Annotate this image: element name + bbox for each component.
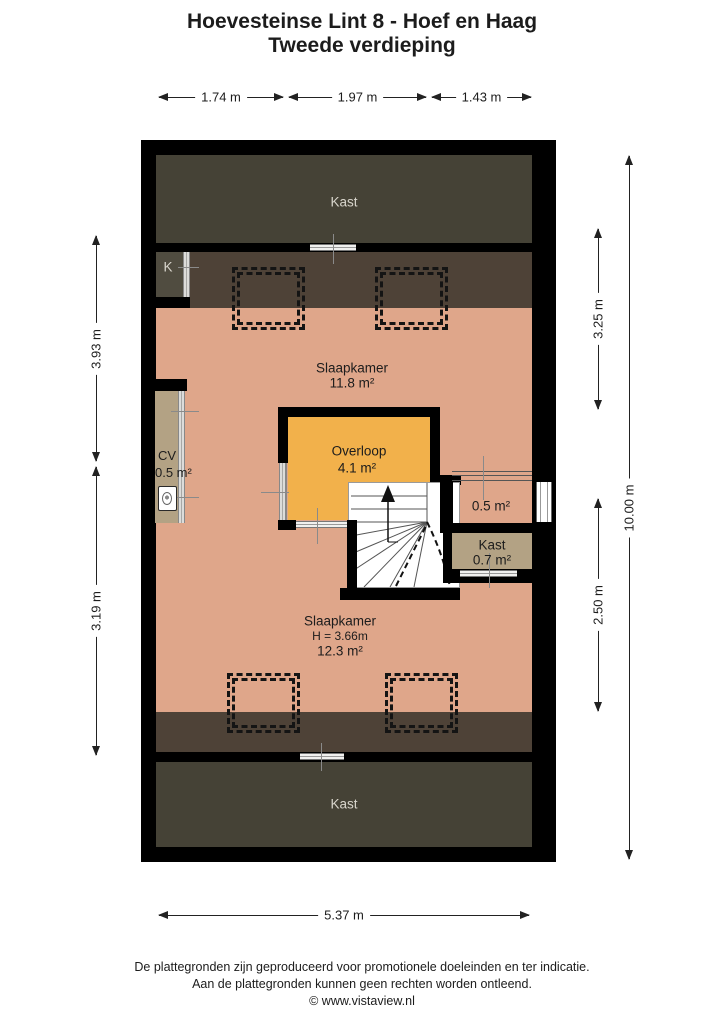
room-label-slaapkamer2: Slaapkamer bbox=[304, 614, 376, 629]
skylight-inner-frame bbox=[232, 678, 295, 728]
skylight-icon bbox=[227, 673, 300, 733]
door-tick bbox=[317, 508, 318, 544]
footer-credit: © www.vistaview.nl bbox=[0, 994, 724, 1008]
k-leader-line bbox=[178, 267, 199, 268]
arrowhead-right-icon bbox=[522, 93, 532, 101]
dimension-label: 3.93 m bbox=[88, 323, 105, 375]
dimension-bottom: 5.37 m bbox=[158, 908, 530, 922]
wall-overloop-top bbox=[278, 407, 440, 417]
sliding-door-overloop bbox=[296, 521, 348, 528]
arrowhead-down-icon bbox=[92, 452, 100, 462]
dimension-label: 1.74 m bbox=[195, 90, 247, 105]
floorplan: Kast K Slaapkamer 11.8 m² Overloop 4.1 m… bbox=[141, 140, 556, 862]
wall-stair-left bbox=[347, 520, 357, 588]
dimension-label: 2.50 m bbox=[590, 579, 607, 631]
skylight-inner-frame bbox=[237, 272, 300, 325]
wall-stair-bottom bbox=[340, 588, 460, 600]
dimension-right-1: 3.25 m bbox=[591, 228, 605, 410]
arrowhead-up-icon bbox=[92, 235, 100, 245]
dimension-right-total: 10.00 m bbox=[622, 155, 636, 860]
room-label-overloop: Overloop bbox=[332, 444, 387, 459]
skylight-icon bbox=[375, 267, 448, 330]
dimension-left-1: 3.93 m bbox=[89, 235, 103, 462]
wall-overloop-left bbox=[278, 417, 288, 463]
stair-railing bbox=[452, 471, 532, 481]
dimension-top-3: 1.43 m bbox=[431, 90, 532, 104]
skylight-icon bbox=[385, 673, 458, 733]
door-tick bbox=[171, 411, 199, 412]
door-tick bbox=[321, 743, 322, 771]
dimension-label: 10.00 m bbox=[621, 478, 638, 537]
room-area-kast-small: 0.7 m² bbox=[473, 553, 511, 568]
room-area-void: 0.5 m² bbox=[472, 499, 510, 514]
dimension-label: 3.25 m bbox=[590, 293, 607, 345]
room-area-cv: 0.5 m² bbox=[155, 465, 192, 480]
dimension-label: 5.37 m bbox=[318, 908, 370, 923]
arrowhead-down-icon bbox=[625, 850, 633, 860]
sloped-ceiling-strip-2 bbox=[156, 712, 532, 752]
arrowhead-up-icon bbox=[625, 155, 633, 165]
arrowhead-left-icon bbox=[158, 911, 168, 919]
wall-overloop-right bbox=[430, 417, 440, 475]
arrowhead-down-icon bbox=[594, 702, 602, 712]
arrowhead-up-icon bbox=[92, 466, 100, 476]
door-tick bbox=[261, 492, 289, 493]
dimension-right-2: 2.50 m bbox=[591, 498, 605, 712]
dimension-label: 1.97 m bbox=[332, 90, 384, 105]
skylight-inner-frame bbox=[380, 272, 443, 325]
arrowhead-right-icon bbox=[274, 93, 284, 101]
boiler-knob-icon bbox=[162, 492, 172, 505]
skylight-inner-frame bbox=[390, 678, 453, 728]
wall-void-closet bbox=[440, 523, 532, 533]
room-label-kast-top: Kast bbox=[330, 195, 357, 210]
wall-overloop-bottom bbox=[278, 520, 296, 530]
window-icon bbox=[536, 482, 552, 522]
dimension-top-2: 1.97 m bbox=[288, 90, 427, 104]
arrowhead-up-icon bbox=[594, 228, 602, 238]
room-label-kast-small: Kast bbox=[478, 538, 505, 553]
boiler-icon bbox=[158, 486, 177, 511]
sloped-ceiling-strip-1 bbox=[156, 252, 532, 308]
k-closet-door bbox=[183, 252, 190, 297]
dimension-top-1: 1.74 m bbox=[158, 90, 284, 104]
dimension-left-2: 3.19 m bbox=[89, 466, 103, 756]
arrowhead-down-icon bbox=[92, 746, 100, 756]
room-area-overloop: 4.1 m² bbox=[338, 461, 376, 476]
room-area-slaapkamer1: 11.8 m² bbox=[330, 376, 375, 391]
arrowhead-up-icon bbox=[594, 498, 602, 508]
railing-tick bbox=[483, 456, 484, 500]
arrowhead-left-icon bbox=[288, 93, 298, 101]
room-area-slaapkamer2: 12.3 m² bbox=[317, 644, 363, 659]
room-label-k: K bbox=[163, 260, 172, 275]
arrowhead-left-icon bbox=[431, 93, 441, 101]
sliding-door-closet-bottom bbox=[300, 753, 344, 760]
door-tick bbox=[333, 234, 334, 264]
dimension-label: 3.19 m bbox=[88, 585, 105, 637]
room-height-slaapkamer2: H = 3.66m bbox=[312, 629, 368, 643]
room-label-kast-bottom: Kast bbox=[330, 797, 357, 812]
dimension-label: 1.43 m bbox=[456, 90, 508, 105]
page-subtitle: Tweede verdieping bbox=[0, 34, 724, 58]
arrowhead-down-icon bbox=[594, 400, 602, 410]
page-title: Hoevesteinse Lint 8 - Hoef en Haag bbox=[0, 10, 724, 34]
room-label-cv: CV bbox=[158, 448, 176, 463]
wall-k-closet bbox=[156, 297, 190, 308]
wall-closet-bottom bbox=[156, 752, 532, 762]
room-label-slaapkamer1: Slaapkamer bbox=[316, 361, 388, 376]
footer-disclaimer-1: De plattegronden zijn geproduceerd voor … bbox=[0, 960, 724, 974]
wall-cv-top bbox=[155, 379, 187, 391]
arrowhead-right-icon bbox=[520, 911, 530, 919]
footer-disclaimer-2: Aan de plattegronden kunnen geen rechten… bbox=[0, 977, 724, 991]
skylight-icon bbox=[232, 267, 305, 330]
arrowhead-left-icon bbox=[158, 93, 168, 101]
wall-stair-right bbox=[440, 475, 453, 523]
arrowhead-right-icon bbox=[417, 93, 427, 101]
